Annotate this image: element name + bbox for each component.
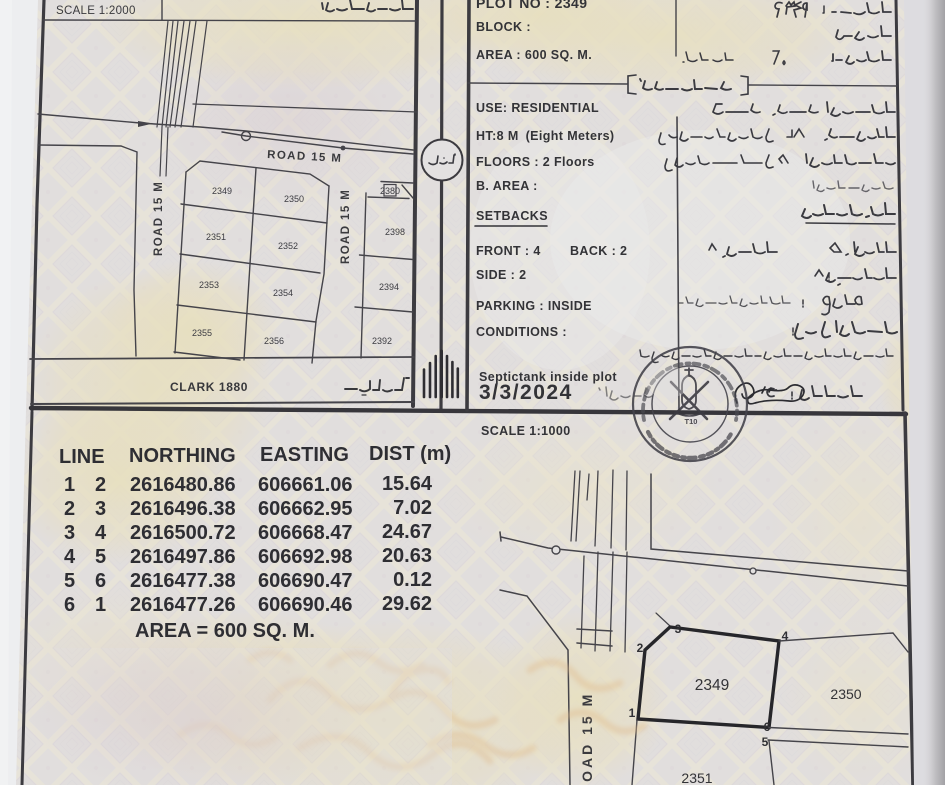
svg-text:1: 1 [629, 706, 636, 720]
svg-text:3: 3 [675, 622, 682, 636]
svg-text:AREA : 600 SQ. M.: AREA : 600 SQ. M. [476, 48, 592, 62]
svg-text:606692.98: 606692.98 [258, 546, 353, 568]
svg-text:29.62: 29.62 [382, 593, 432, 615]
svg-text:PARKING : INSIDE: PARKING : INSIDE [476, 299, 592, 313]
svg-text:5: 5 [64, 570, 75, 592]
svg-text:2351: 2351 [681, 770, 712, 785]
svg-text:SCALE 1:2000: SCALE 1:2000 [56, 5, 136, 17]
svg-text:2616497.86: 2616497.86 [130, 546, 236, 568]
svg-text:SETBACKS: SETBACKS [476, 209, 548, 223]
svg-text:2: 2 [64, 498, 75, 520]
svg-text:USE: RESIDENTIAL: USE: RESIDENTIAL [476, 101, 599, 115]
svg-text:2350: 2350 [830, 686, 861, 702]
svg-text:T10: T10 [685, 417, 698, 426]
svg-text:LINE: LINE [59, 446, 105, 468]
svg-text:AREA = 600 SQ. M.: AREA = 600 SQ. M. [135, 620, 315, 642]
svg-text:2354: 2354 [273, 288, 293, 298]
svg-text:7.02: 7.02 [393, 497, 432, 519]
svg-text:BACK : 2: BACK : 2 [570, 244, 627, 258]
svg-text:2351: 2351 [206, 232, 226, 242]
svg-text:15.64: 15.64 [382, 473, 433, 495]
svg-text:SIDE : 2: SIDE : 2 [476, 268, 526, 282]
svg-text:20.63: 20.63 [382, 545, 432, 567]
svg-text:3/3/2024: 3/3/2024 [479, 381, 573, 404]
svg-text:ROAD 15 M: ROAD 15 M [153, 181, 165, 256]
svg-text:2394: 2394 [379, 282, 399, 292]
svg-text:6: 6 [95, 570, 106, 592]
svg-text:1: 1 [95, 594, 106, 616]
svg-text:DIST (m): DIST (m) [369, 443, 451, 465]
svg-text:606668.47: 606668.47 [258, 522, 353, 544]
svg-text:2380: 2380 [380, 186, 400, 196]
svg-text:FRONT : 4: FRONT : 4 [476, 244, 541, 258]
svg-text:2: 2 [95, 474, 106, 496]
svg-text:606690.46: 606690.46 [258, 594, 353, 616]
svg-text:2349: 2349 [695, 677, 729, 694]
svg-text:2356: 2356 [264, 336, 284, 346]
svg-text:NORTHING: NORTHING [129, 445, 236, 467]
svg-text:CONDITIONS :: CONDITIONS : [476, 325, 567, 339]
svg-text:5: 5 [762, 735, 769, 749]
svg-text:2398: 2398 [385, 227, 405, 237]
svg-text:5: 5 [95, 546, 106, 568]
svg-text:2392: 2392 [372, 336, 392, 346]
svg-text:BLOCK :: BLOCK : [476, 20, 531, 34]
svg-text:1: 1 [64, 474, 75, 496]
svg-text:606661.06: 606661.06 [258, 474, 353, 496]
svg-text:2616480.86: 2616480.86 [130, 474, 236, 496]
svg-text:2349: 2349 [212, 186, 232, 196]
svg-text:FLOORS : 2 Floors: FLOORS : 2 Floors [476, 155, 595, 169]
svg-text:CLARK 1880: CLARK 1880 [170, 380, 248, 394]
svg-text:SCALE 1:1000: SCALE 1:1000 [481, 424, 571, 438]
svg-text:2616477.26: 2616477.26 [130, 594, 236, 616]
svg-text:2352: 2352 [278, 241, 298, 251]
svg-text:2350: 2350 [284, 194, 304, 204]
svg-text:24.67: 24.67 [382, 521, 432, 543]
svg-text:HT:8 M (Eight Meters): HT:8 M (Eight Meters) [476, 129, 615, 143]
svg-text:PLOT NO : 2349: PLOT NO : 2349 [476, 0, 587, 11]
svg-text:3: 3 [64, 522, 75, 544]
svg-text:ROAD 15 M: ROAD 15 M [579, 692, 595, 785]
svg-text:4: 4 [64, 546, 76, 568]
svg-text:2616496.38: 2616496.38 [130, 498, 236, 520]
svg-text:6: 6 [64, 594, 75, 616]
svg-text:2: 2 [637, 641, 644, 655]
svg-text:2355: 2355 [192, 328, 212, 338]
svg-text:0.12: 0.12 [393, 569, 432, 591]
svg-text:2616500.72: 2616500.72 [130, 522, 236, 544]
svg-text:EASTING: EASTING [260, 444, 349, 466]
svg-text:2616477.38: 2616477.38 [130, 570, 236, 592]
svg-text:ROAD 15 M: ROAD 15 M [340, 189, 352, 264]
svg-text:4: 4 [95, 522, 107, 544]
svg-text:606690.47: 606690.47 [258, 570, 353, 592]
svg-text:B. AREA :: B. AREA : [476, 179, 538, 193]
svg-text:2353: 2353 [199, 280, 219, 290]
svg-text:606662.95: 606662.95 [258, 498, 353, 520]
svg-text:3: 3 [95, 498, 106, 520]
